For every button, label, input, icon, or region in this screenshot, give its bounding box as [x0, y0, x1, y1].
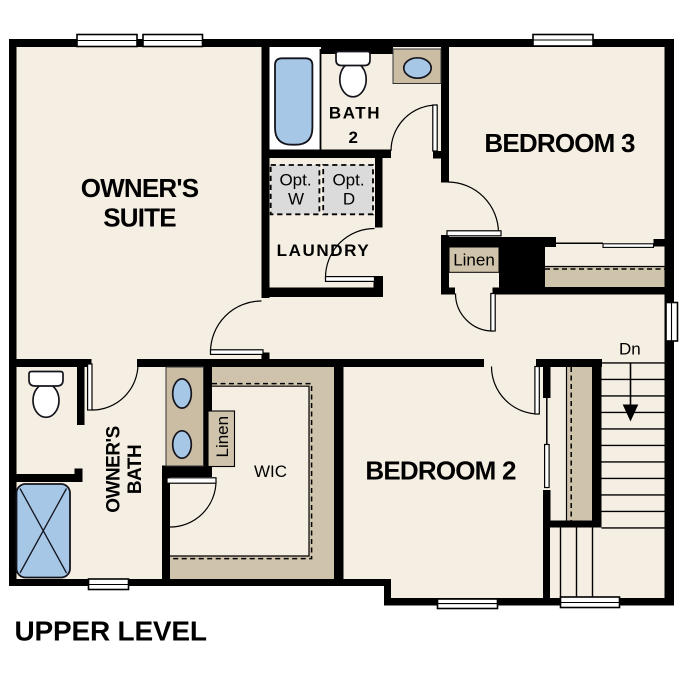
svg-text:Opt.: Opt.: [332, 171, 364, 190]
svg-text:Opt.: Opt.: [279, 171, 311, 190]
svg-text:BATH: BATH: [125, 445, 146, 494]
svg-text:OWNER'S: OWNER'S: [104, 426, 125, 513]
svg-text:WIC: WIC: [254, 462, 287, 481]
svg-text:BATH: BATH: [329, 104, 381, 123]
svg-text:OWNER'S: OWNER'S: [81, 173, 199, 203]
svg-text:Linen: Linen: [213, 416, 232, 458]
svg-text:UPPER LEVEL: UPPER LEVEL: [15, 616, 207, 647]
svg-text:LAUNDRY: LAUNDRY: [277, 241, 371, 260]
svg-text:2: 2: [348, 128, 359, 147]
svg-text:D: D: [343, 190, 355, 209]
svg-text:Dn: Dn: [619, 340, 641, 359]
svg-text:BEDROOM 3: BEDROOM 3: [484, 128, 635, 158]
svg-text:W: W: [288, 190, 304, 209]
svg-text:BEDROOM 2: BEDROOM 2: [365, 456, 516, 486]
svg-text:SUITE: SUITE: [103, 203, 176, 233]
svg-text:Linen: Linen: [453, 251, 495, 270]
